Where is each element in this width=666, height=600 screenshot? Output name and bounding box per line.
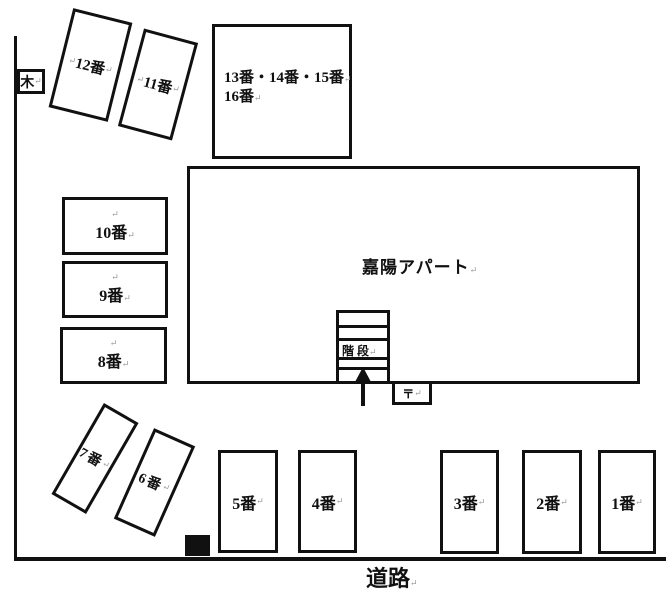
utility-box: 〒↵ xyxy=(392,381,432,405)
left-boundary-line xyxy=(14,36,17,559)
parking-space-1-label: 1番 xyxy=(611,490,635,514)
parking-space-9-label: 9番 xyxy=(99,288,123,305)
parking-group-line2: 16番 xyxy=(224,89,254,105)
parking-space-5: 5番↵ xyxy=(218,450,278,553)
tree-box: 木↵ xyxy=(17,69,45,94)
parking-space-9: ↵ 9番↵ xyxy=(62,261,168,318)
parking-space-1: 1番↵ xyxy=(598,450,656,554)
parking-space-4-label: 4番 xyxy=(312,490,336,514)
postal-mark-label: 〒 xyxy=(402,385,414,402)
line-break-mark: ↵ xyxy=(635,498,643,507)
line-break-mark: ↵ xyxy=(410,578,418,588)
line-break-mark: ↵ xyxy=(414,389,422,398)
parking-space-2-label: 2番 xyxy=(536,490,560,514)
parking-space-3: 3番↵ xyxy=(440,450,499,554)
line-break-mark: ↵ xyxy=(478,498,486,507)
parking-space-10: ↵ 10番↵ xyxy=(62,197,168,255)
tree-label: 木 xyxy=(20,72,34,92)
line-break-mark: ↵ xyxy=(122,359,130,369)
parking-space-8: ↵ 8番↵ xyxy=(60,327,167,384)
line-break-mark: ↵ xyxy=(256,497,264,506)
line-break-mark: ↵ xyxy=(254,93,262,103)
apartment-building: 嘉陽アパート↵ xyxy=(187,166,640,384)
stairs-label: 階 段 xyxy=(342,344,369,358)
line-break-mark: ↵ xyxy=(34,77,42,86)
parking-space-8-label: 8番 xyxy=(98,354,122,371)
line-break-mark: ↵ xyxy=(123,293,131,303)
line-break-mark: ↵ xyxy=(110,339,118,348)
parking-space-10-label: 10番 xyxy=(95,225,127,242)
road-edge-line xyxy=(14,557,666,561)
parking-space-5-label: 5番 xyxy=(232,490,256,514)
line-break-mark: ↵ xyxy=(369,347,377,357)
line-break-mark: ↵ xyxy=(161,482,172,493)
parking-space-11: ↵11番↵ xyxy=(118,28,198,140)
line-break-mark: ↵ xyxy=(111,210,119,219)
road-label-text: 道路 xyxy=(366,566,410,591)
stair-step-line xyxy=(338,325,388,328)
entrance-arrow-shaft xyxy=(361,380,365,406)
line-break-mark: ↵ xyxy=(344,74,352,84)
black-marker xyxy=(185,535,210,556)
line-break-mark: ↵ xyxy=(336,497,344,506)
road-label: 道路↵ xyxy=(366,561,418,593)
entrance-arrow-head xyxy=(355,367,371,382)
line-break-mark: ↵ xyxy=(111,273,119,282)
parking-space-12: ↵12番↵ xyxy=(49,8,133,122)
parking-space-11-label: 11番 xyxy=(141,71,175,99)
site-plan: 道路↵ 木↵ ↵12番↵ ↵11番↵ 13番・14番・15番↵ 16番↵ 嘉陽ア… xyxy=(0,0,666,600)
parking-space-3-label: 3番 xyxy=(454,490,478,514)
parking-space-12-label: 12番 xyxy=(73,51,107,79)
stair-step-line xyxy=(338,338,388,341)
parking-space-2: 2番↵ xyxy=(522,450,582,554)
line-break-mark: ↵ xyxy=(560,498,568,507)
parking-group-line1: 13番・14番・15番 xyxy=(224,70,344,86)
line-break-mark: ↵ xyxy=(470,265,479,275)
line-break-mark: ↵ xyxy=(171,84,181,95)
apartment-name: 嘉陽アパート xyxy=(362,258,470,277)
parking-group-box-13-16: 13番・14番・15番↵ 16番↵ xyxy=(212,24,352,159)
line-break-mark: ↵ xyxy=(104,64,113,75)
parking-space-4: 4番↵ xyxy=(298,450,357,553)
line-break-mark: ↵ xyxy=(127,230,135,240)
